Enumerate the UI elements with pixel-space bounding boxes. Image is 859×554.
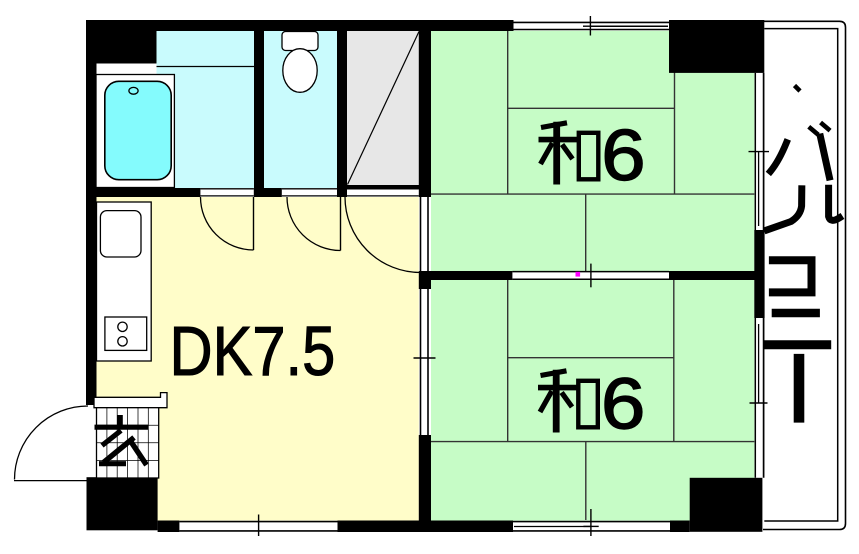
svg-text:6: 6: [601, 115, 645, 196]
svg-text:DK7.5: DK7.5: [170, 311, 336, 390]
svg-text:6: 6: [601, 364, 645, 445]
